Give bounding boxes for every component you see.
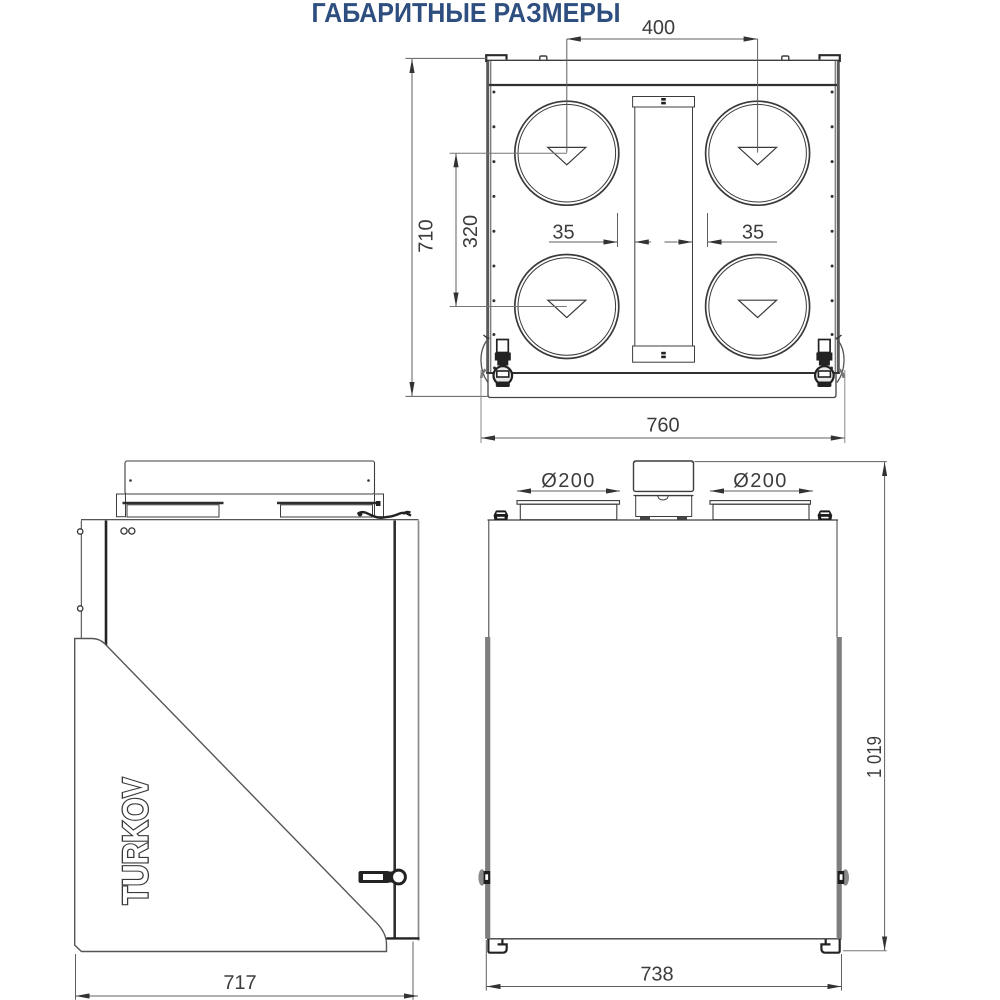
svg-text:TURKOV: TURKOV: [116, 777, 156, 904]
svg-text:1 019: 1 019: [864, 736, 886, 778]
svg-text:ГАБАРИТНЫЕ РАЗМЕРЫ: ГАБАРИТНЫЕ РАЗМЕРЫ: [311, 0, 620, 28]
svg-text:320: 320: [460, 215, 482, 248]
svg-text:710: 710: [416, 219, 438, 252]
svg-text:35: 35: [552, 221, 574, 243]
svg-text:Ø200: Ø200: [541, 470, 596, 492]
svg-text:760: 760: [646, 414, 679, 436]
svg-text:717: 717: [223, 972, 256, 994]
svg-text:35: 35: [742, 221, 764, 243]
svg-text:400: 400: [642, 17, 675, 39]
svg-text:Ø200: Ø200: [733, 470, 788, 492]
svg-text:738: 738: [640, 963, 673, 985]
